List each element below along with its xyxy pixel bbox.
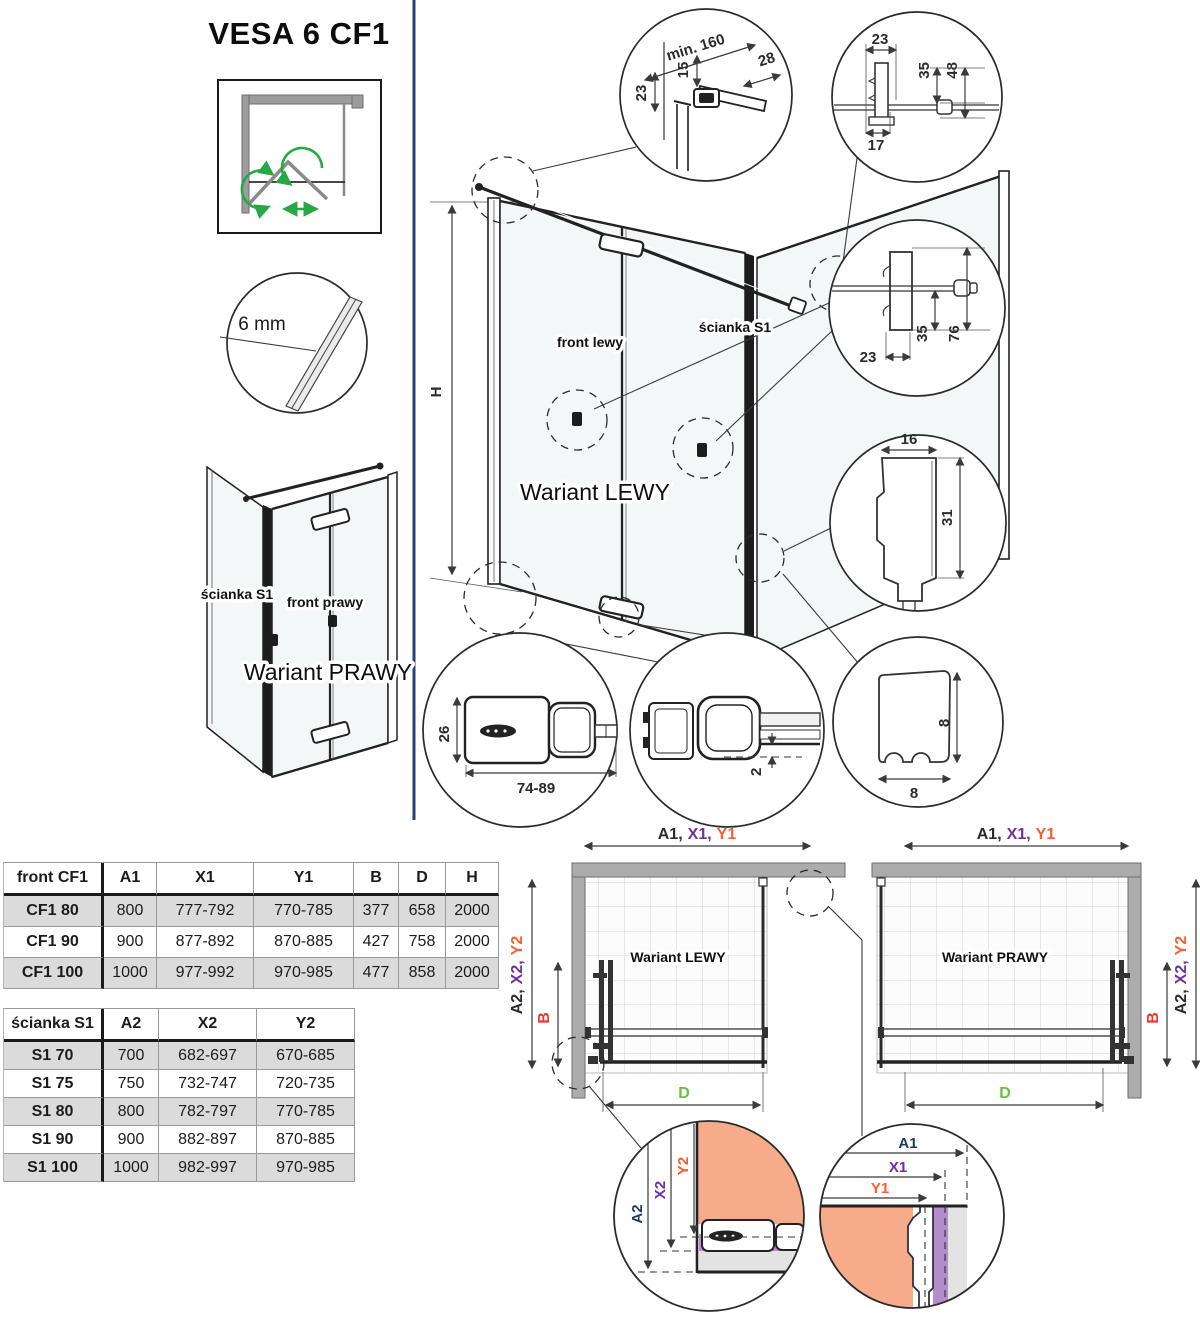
front-lewy-label: front lewy	[557, 334, 623, 350]
dim-8-width: 8	[910, 785, 918, 802]
detail-top-hinge: min. 160 28 15 23	[620, 9, 792, 181]
dim-17: 17	[868, 137, 885, 154]
dim-48: 48	[944, 62, 961, 79]
wall-s1-label: ścianka S1	[699, 319, 772, 335]
dim-2: 2	[748, 768, 765, 776]
plan-view-lewy: A1,X1,Y1 A2,X2,Y2 B D Wariant LEWY	[509, 826, 862, 1148]
dim-26: 26	[436, 726, 453, 743]
detail-wall-bracket: 23 35 76	[829, 220, 1005, 396]
dim-15: 15	[675, 62, 692, 79]
variant-prawy-isometric: ścianka S1 front prawy Wariant PRAWY	[201, 463, 412, 778]
install-a2-label: A2	[629, 1204, 646, 1223]
height-dim-label: H	[428, 387, 445, 398]
install-a1-label: A1	[898, 1135, 917, 1152]
detail-stabilizer-fixing: 23 35 48 17	[832, 12, 1002, 182]
plan-prawy-front-dim: A1,X1,Y1	[977, 826, 1056, 843]
dim-23: 23	[860, 349, 877, 366]
install-x1-label: X1	[889, 1159, 907, 1176]
detail-wall-holder: 26 74-89	[423, 633, 617, 827]
install-detail-front: A1 X1 Y1	[818, 1124, 1004, 1316]
dim-16: 16	[901, 431, 918, 448]
folding-pictogram	[218, 80, 381, 233]
plan-lewy-b-dim: B	[536, 1012, 553, 1024]
dim-8-height: 8	[936, 719, 953, 727]
install-x2-label: X2	[652, 1181, 669, 1199]
glass-thickness-detail: 6 mm	[220, 273, 367, 413]
drawing-canvas: 6 mm ścianka S1 front prawy Wariant PRAW…	[0, 0, 1200, 1326]
dim-35: 35	[916, 62, 933, 79]
dim-35: 35	[914, 325, 931, 342]
variant-lewy-title: Wariant LEWY	[520, 479, 670, 505]
detail-seal: 8 8	[833, 637, 1003, 807]
plan-prawy-d-dim: D	[999, 1085, 1011, 1102]
dim-23: 23	[872, 31, 889, 48]
technical-sheet: VESA 6 CF1 front CF1 A1 X1 Y1 B D H CF1 …	[0, 0, 1200, 1326]
install-detail-wall: A2 X2 Y2	[614, 1119, 816, 1311]
plan-lewy-front-dim: A1,X1,Y1	[658, 826, 737, 843]
front-prawy-label: front prawy	[287, 594, 363, 610]
dim-76: 76	[946, 325, 963, 342]
plan-lewy-side-dim: A2,X2,Y2	[509, 936, 526, 1015]
wall-s1-label: ścianka S1	[201, 586, 274, 602]
dim-23: 23	[633, 85, 650, 102]
glass-thickness-label: 6 mm	[238, 314, 286, 335]
plan-prawy-title: Wariant PRAWY	[942, 949, 1049, 965]
dim-74-89: 74-89	[517, 780, 555, 797]
plan-lewy-title: Wariant LEWY	[630, 949, 726, 965]
plan-view-prawy: A1,X1,Y1 A2,X2,Y2 B D Wariant PRAWY	[872, 826, 1196, 1112]
plan-prawy-side-dim: A2,X2,Y2	[1173, 936, 1190, 1015]
variant-prawy-title: Wariant PRAWY	[244, 659, 412, 685]
plan-lewy-d-dim: D	[678, 1085, 690, 1102]
detail-bottom-guide: 2	[630, 633, 824, 827]
install-y1-label: Y1	[871, 1180, 889, 1197]
plan-prawy-b-dim: B	[1145, 1012, 1162, 1024]
dim-31: 31	[939, 509, 956, 526]
install-y2-label: Y2	[675, 1157, 692, 1175]
